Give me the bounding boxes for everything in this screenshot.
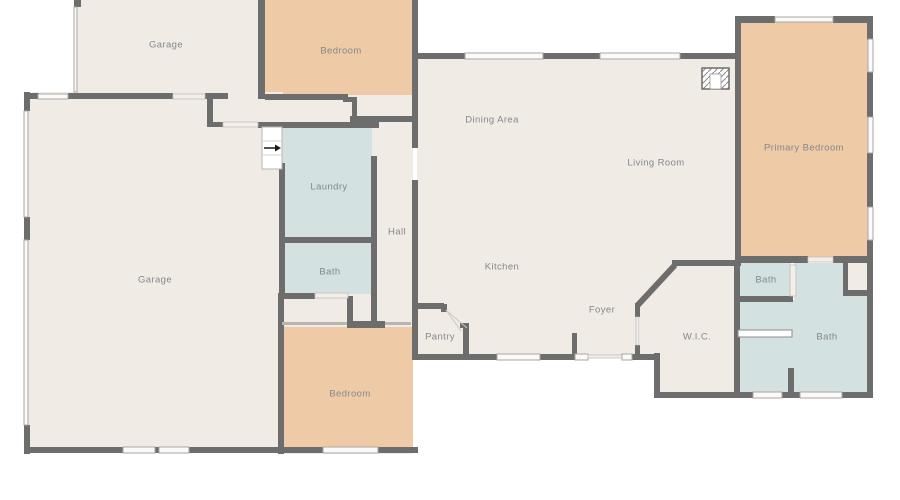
room-label-dining-area: Dining Area bbox=[465, 115, 519, 126]
window bbox=[868, 117, 873, 153]
window bbox=[800, 392, 842, 398]
window bbox=[775, 17, 833, 22]
door-sill bbox=[808, 257, 833, 262]
window bbox=[465, 53, 543, 59]
window bbox=[123, 447, 155, 453]
window bbox=[868, 207, 873, 240]
room-primary-bedroom bbox=[740, 21, 868, 258]
room-label-bedroom-upper: Bedroom bbox=[320, 46, 361, 57]
fireplace-icon bbox=[702, 68, 729, 89]
room-label-wic: W.I.C. bbox=[683, 332, 711, 343]
room-label-foyer: Foyer bbox=[589, 305, 615, 316]
door-sill bbox=[315, 293, 348, 298]
room-closet-nook bbox=[845, 263, 867, 292]
room-fills bbox=[24, 0, 868, 454]
window bbox=[753, 392, 782, 398]
room-label-laundry: Laundry bbox=[310, 182, 347, 193]
window bbox=[575, 354, 588, 360]
window bbox=[868, 39, 873, 72]
room-label-bath-hall: Bath bbox=[319, 267, 340, 278]
door-sill bbox=[173, 94, 205, 99]
window bbox=[24, 240, 28, 425]
stairs-icon bbox=[262, 127, 282, 169]
window bbox=[38, 94, 68, 99]
room-label-bedroom-lower: Bedroom bbox=[329, 389, 370, 400]
opening-threshold bbox=[385, 322, 411, 325]
window bbox=[74, 7, 77, 92]
room-label-bath-primary: Bath bbox=[816, 332, 837, 343]
window bbox=[323, 447, 378, 453]
pocket-door bbox=[738, 330, 792, 337]
room-label-garage-main: Garage bbox=[138, 275, 172, 286]
room-bedroom-lower bbox=[282, 327, 413, 448]
room-label-bath-small: Bath bbox=[755, 275, 776, 286]
window bbox=[497, 354, 540, 360]
door-sill bbox=[790, 265, 796, 296]
room-label-primary-bedroom: Primary Bedroom bbox=[764, 143, 844, 154]
door-sill bbox=[223, 122, 258, 127]
window bbox=[600, 53, 680, 59]
room-label-hall: Hall bbox=[388, 227, 406, 238]
door-sill bbox=[636, 317, 639, 345]
window bbox=[159, 447, 189, 453]
room-label-kitchen: Kitchen bbox=[485, 262, 520, 273]
room-garage-main bbox=[24, 92, 283, 453]
front-door-sill bbox=[588, 355, 622, 358]
room-label-garage-upper: Garage bbox=[149, 40, 183, 51]
opening-threshold bbox=[282, 322, 347, 325]
room-label-living-room: Living Room bbox=[627, 158, 684, 169]
floor-plan-canvas bbox=[0, 0, 900, 500]
window bbox=[622, 354, 632, 360]
window bbox=[24, 111, 28, 217]
floor-plan: GarageBedroomGarageLaundryHallBathBedroo… bbox=[0, 0, 900, 500]
room-label-pantry: Pantry bbox=[425, 332, 455, 343]
